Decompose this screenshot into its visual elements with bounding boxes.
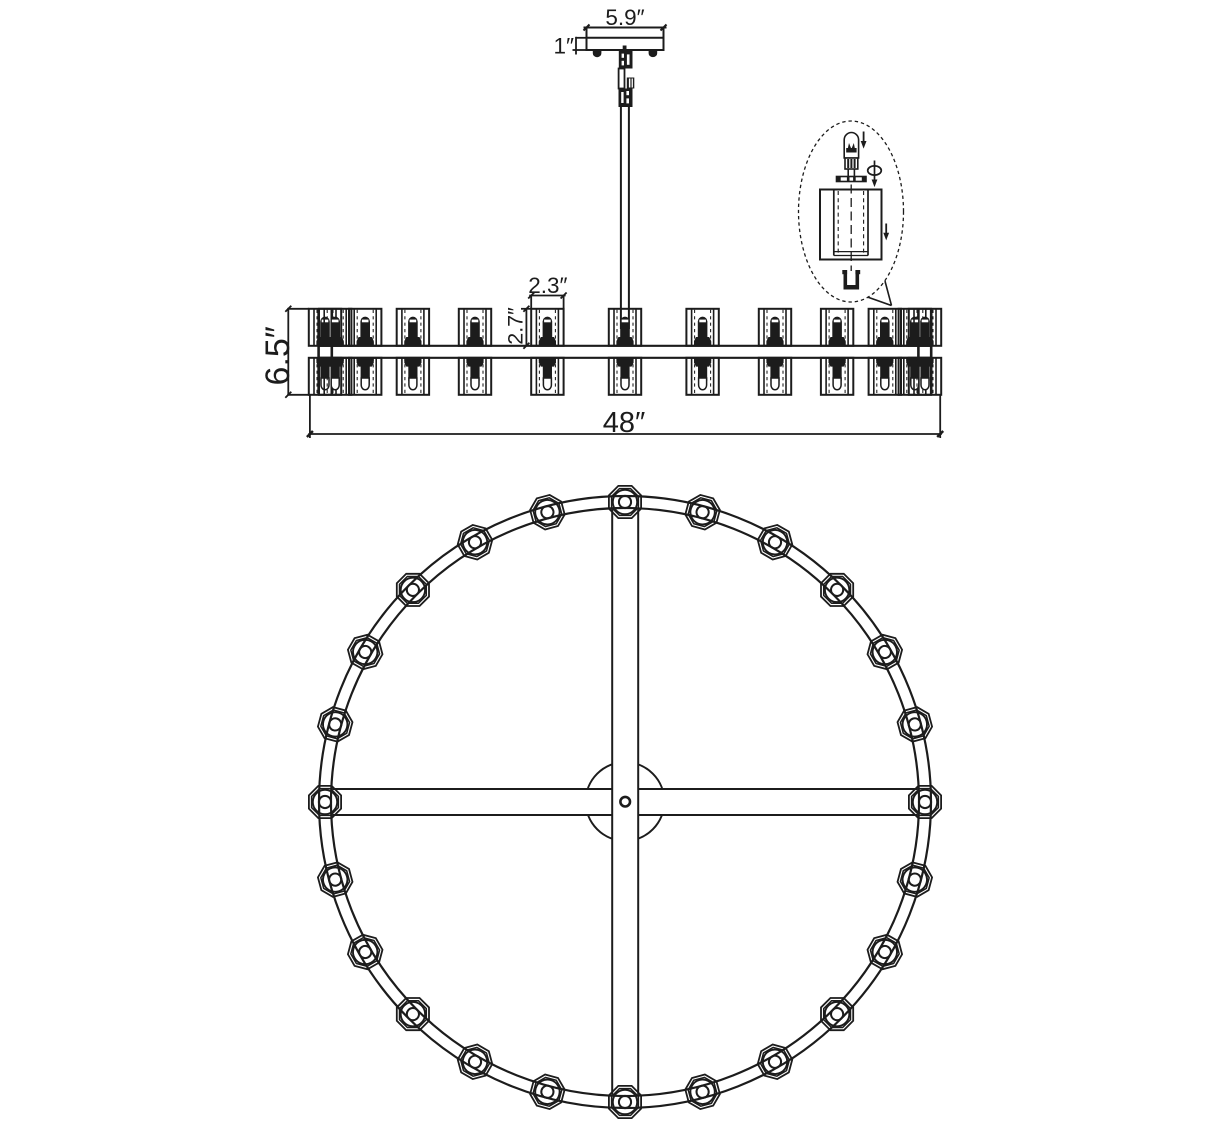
svg-text:2.3″: 2.3″ [528, 273, 567, 298]
svg-text:1″: 1″ [554, 34, 575, 59]
svg-text:2.7″: 2.7″ [504, 307, 528, 345]
svg-text:48″: 48″ [603, 407, 646, 439]
svg-text:5.9″: 5.9″ [605, 5, 644, 30]
svg-text:6.5″: 6.5″ [259, 326, 297, 385]
